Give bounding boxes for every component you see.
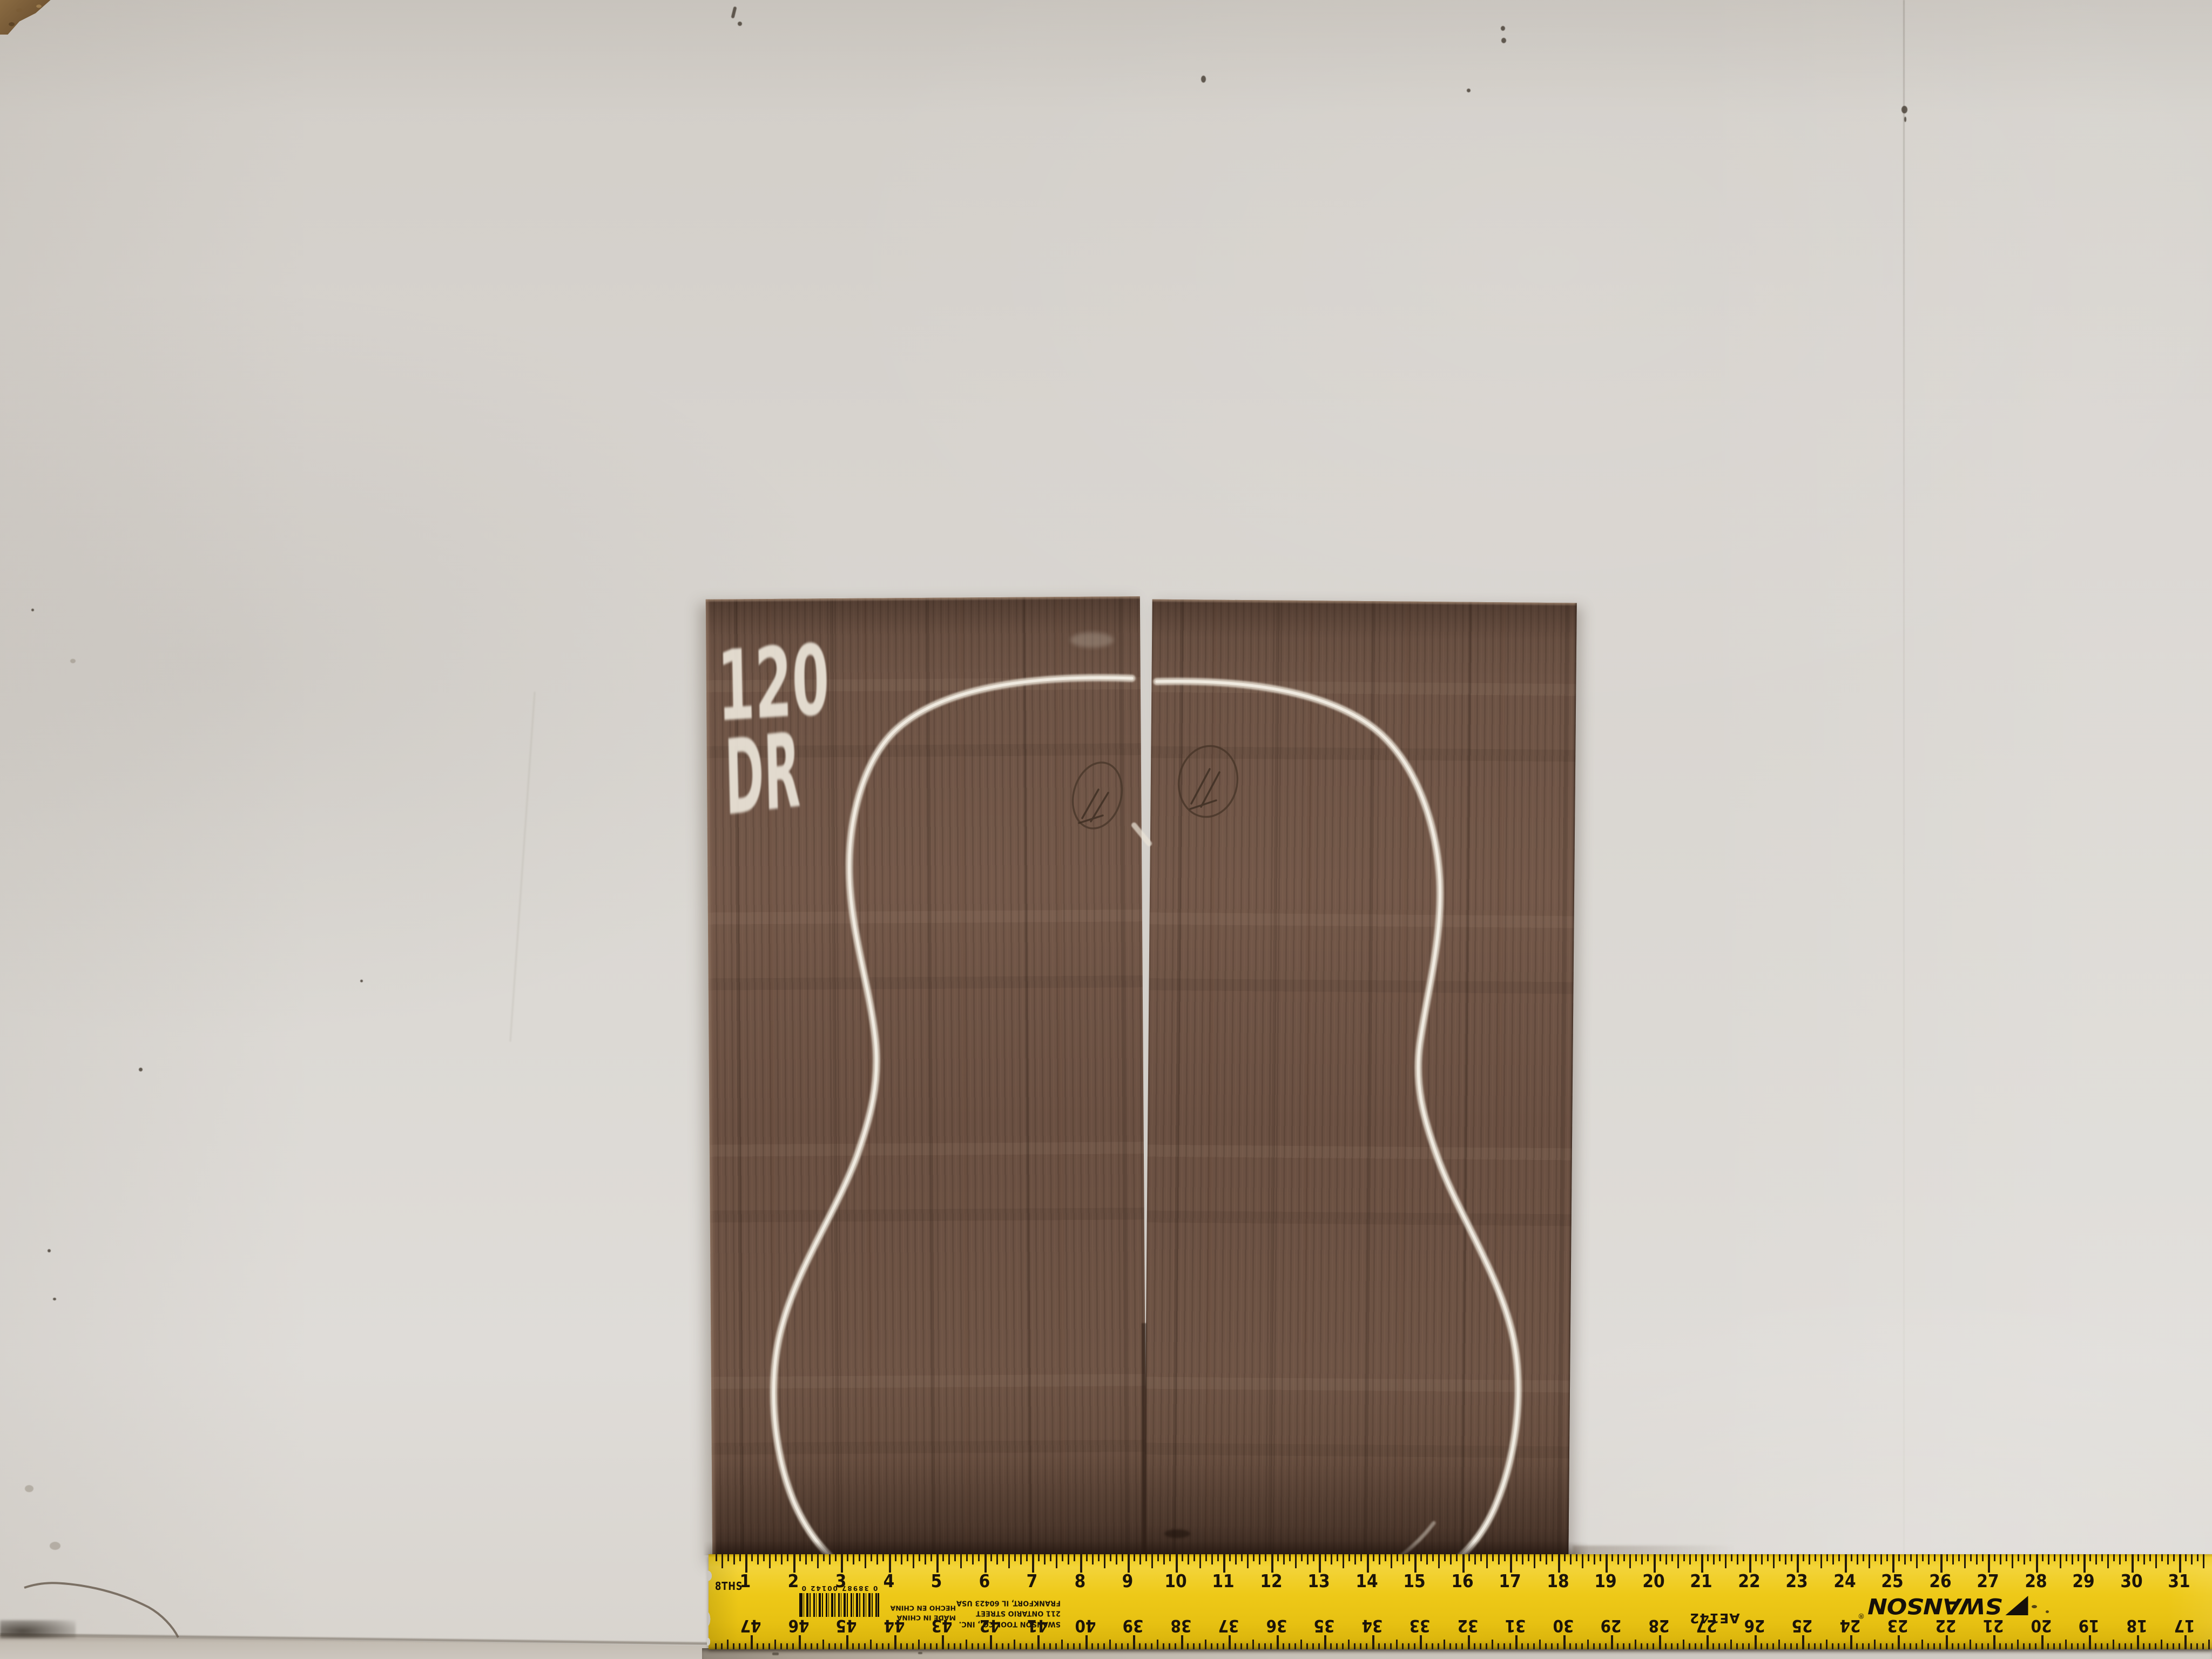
ruler-tick — [1981, 1643, 1983, 1649]
ruler-tick — [1044, 1554, 1046, 1564]
ruler-tick — [1695, 1643, 1696, 1649]
ruler-tick — [1606, 1554, 1608, 1573]
ruler-tick — [1127, 1643, 1129, 1649]
ruler-tick — [792, 1643, 794, 1649]
ruler-tick — [2060, 1554, 2061, 1568]
ruler-tick — [1593, 1643, 1595, 1649]
ruler-tick — [1832, 1643, 1833, 1649]
ruler-tick — [774, 1640, 776, 1649]
ruler-tick — [1134, 1554, 1135, 1561]
ruler-tick — [1031, 1643, 1033, 1649]
ruler-tick — [1067, 1643, 1069, 1649]
ruler-tick — [1958, 1554, 1960, 1561]
ruler-tick — [1940, 1554, 1943, 1573]
ruler-tick — [1623, 1643, 1624, 1649]
ruler-tick — [1588, 1554, 1589, 1561]
ruler-tick — [1545, 1643, 1547, 1649]
ruler-tick — [1904, 1643, 1905, 1649]
ruler-tick — [1092, 1554, 1094, 1564]
ruler-tick — [1498, 1643, 1499, 1649]
ruler-tick — [1366, 1643, 1367, 1649]
ruler-tick — [1707, 1554, 1709, 1561]
ruler-tick — [829, 1554, 831, 1564]
ruler-tick — [1373, 1554, 1374, 1561]
ruler-tick — [977, 1643, 979, 1649]
ruler-tick — [1181, 1635, 1183, 1649]
ruler-top-number: 27 — [1977, 1570, 1999, 1591]
ruler-tick — [1611, 1554, 1613, 1561]
ruler-bottom-number: 25 — [1792, 1616, 1813, 1635]
ruler-top-number: 26 — [1929, 1570, 1951, 1591]
ruler-tick — [1492, 1640, 1493, 1649]
ruler-bottom-number: 37 — [1218, 1616, 1239, 1635]
ruler-tick — [1551, 1643, 1553, 1649]
workshop-photo-scene: 120 DR 123456789101112131415161718192021… — [0, 0, 2212, 1659]
ruler-tick — [2113, 1640, 2114, 1649]
ruler-top-number: 18 — [1547, 1570, 1569, 1591]
ruler-tick — [1408, 1643, 1410, 1649]
ruler-top-number: 22 — [1738, 1570, 1760, 1591]
ruler-tick — [1964, 1643, 1965, 1649]
ruler-tick — [2167, 1643, 2168, 1649]
ruler-tick — [1748, 1643, 1750, 1649]
ruler-tick — [745, 1643, 746, 1649]
ruler-tick — [1408, 1554, 1410, 1561]
ruler-tick — [1426, 1554, 1428, 1564]
swanson-triangle-icon — [2005, 1596, 2028, 1616]
ruler-tick — [1432, 1554, 1434, 1561]
ruler-tick — [2167, 1554, 2169, 1564]
ruler-tick — [1605, 1643, 1607, 1649]
ruler-tick — [1289, 1554, 1291, 1561]
ruler-tick — [1379, 1554, 1380, 1564]
ruler-tick — [1145, 1643, 1147, 1649]
ruler-tick — [907, 1554, 908, 1561]
ruler-tick — [1097, 1643, 1099, 1649]
ruler-tick — [1970, 1554, 1972, 1561]
ruler-tick — [1641, 1643, 1642, 1649]
ruler-tick — [1104, 1554, 1105, 1568]
ruler-tick — [942, 1554, 944, 1561]
ruler-tick — [1809, 1554, 1810, 1564]
ruler-tick — [1993, 1635, 1995, 1649]
ruler-tick — [1975, 1643, 1977, 1649]
ruler-tick — [2173, 1643, 2174, 1649]
ruler-tick — [1582, 1554, 1583, 1568]
ruler-tick — [1629, 1554, 1631, 1568]
ruler-tick — [1247, 1554, 1249, 1568]
ruler-tick — [1182, 1554, 1183, 1561]
ruler-tick — [1987, 1643, 1989, 1649]
ruler-tick — [1306, 1643, 1308, 1649]
ruler-tick — [913, 1554, 914, 1568]
ruler-tick — [1701, 1643, 1702, 1649]
ruler-tick — [2035, 1643, 2036, 1649]
ruler-tick — [1701, 1554, 1703, 1573]
ruler-tick — [2018, 1554, 2019, 1561]
ruler-tick — [1486, 1554, 1488, 1568]
ruler-tick — [2023, 1643, 2025, 1649]
ruler-scale-label: 8THS — [715, 1580, 743, 1593]
ruler-tick — [2155, 1554, 2157, 1568]
ruler-tick — [2125, 1554, 2127, 1561]
wood-crack — [1164, 1529, 1190, 1538]
ruler-tick — [1534, 1554, 1535, 1568]
ruler-tick — [936, 1554, 939, 1573]
ruler-tick — [876, 1643, 878, 1649]
ruler-tick — [1910, 1643, 1911, 1649]
ruler-tick — [966, 1640, 967, 1649]
ruler-tick — [1271, 1554, 1273, 1573]
ruler-top-number: 30 — [2120, 1570, 2142, 1591]
ruler-tick — [1444, 1554, 1446, 1561]
ruler-tick — [1348, 1554, 1350, 1561]
ruler-tick — [1898, 1554, 1900, 1561]
ruler-tick — [948, 1643, 949, 1649]
ruler-tick — [1671, 1643, 1673, 1649]
ruler-tick — [1742, 1643, 1744, 1649]
ruler-tick — [1898, 1635, 1900, 1649]
ruler-tick — [763, 1554, 765, 1561]
ruler-tick — [1522, 1554, 1523, 1564]
ruler-tick — [978, 1554, 980, 1561]
ruler-tick — [1348, 1640, 1350, 1649]
ruler-tick — [2041, 1635, 2044, 1649]
ruler-top-number: 31 — [2168, 1570, 2190, 1591]
ruler-tick — [793, 1554, 795, 1573]
ruler-tick — [1139, 1643, 1141, 1649]
ruler-tick — [1808, 1643, 1810, 1649]
ruler-tick — [1654, 1554, 1656, 1573]
ruler-tick — [1079, 1643, 1081, 1649]
ruler-tick — [2119, 1643, 2120, 1649]
ruler-tick — [1815, 1554, 1816, 1561]
ruler-tick — [2143, 1643, 2144, 1649]
ruler-top-number: 20 — [1642, 1570, 1664, 1591]
ruler-tick — [846, 1635, 848, 1649]
ruler-tick — [1838, 1643, 1839, 1649]
ruler-tick — [2083, 1554, 2086, 1573]
ruler-tick — [1563, 1635, 1566, 1649]
ruler-tick — [733, 1643, 734, 1649]
ruler-tick — [1014, 1554, 1016, 1561]
ruler-tick — [1617, 1643, 1618, 1649]
ruler-top-number: 8 — [1074, 1570, 1085, 1591]
ruler-tick — [2107, 1643, 2108, 1649]
ruler-tick — [1874, 1554, 1876, 1561]
ruler-tick — [960, 1554, 962, 1568]
ruler-tick — [1796, 1643, 1798, 1649]
ruler-tick — [1151, 1554, 1153, 1568]
ruler-tick — [1934, 1554, 1935, 1561]
ruler-top-number: 5 — [931, 1570, 942, 1591]
ruler-tick — [1713, 1554, 1715, 1564]
ruler-tick — [1862, 1643, 1864, 1649]
ruler-tick — [1211, 1554, 1213, 1564]
ruler-tick — [1235, 1643, 1236, 1649]
ruler-tick — [1527, 1643, 1529, 1649]
ruler-tick — [983, 1643, 985, 1649]
ruler-tick — [2161, 1554, 2163, 1561]
ruler-tick — [751, 1554, 753, 1561]
ruler-tick — [2179, 1643, 2180, 1649]
ruler-tick — [1874, 1640, 1876, 1649]
ruler-tick — [1110, 1554, 1111, 1561]
ruler-tick — [1397, 1554, 1398, 1561]
ruler-tick — [1056, 1554, 1057, 1568]
ruler-tick — [1312, 1643, 1314, 1649]
ruler-tick — [786, 1643, 788, 1649]
ruler-tick — [2185, 1554, 2187, 1561]
swanson-logo-text: SWANSON — [1868, 1593, 2002, 1618]
ruler-tick — [1851, 1554, 1852, 1561]
ruler-tick — [2095, 1554, 2097, 1564]
ruler-tick — [1319, 1554, 1321, 1573]
ruler-tick — [835, 1554, 837, 1561]
ruler-tick — [960, 1643, 961, 1649]
ruler-tick — [1037, 1635, 1040, 1649]
ruler-tick — [1325, 1554, 1326, 1561]
ruler-tick — [1600, 1554, 1601, 1561]
ruler-tick — [1503, 1643, 1505, 1649]
ruler-tick — [1480, 1643, 1481, 1649]
ruler-tick — [2017, 1640, 2019, 1649]
ruler-tick — [2202, 1643, 2204, 1649]
ruler-tick — [1283, 1643, 1284, 1649]
ruler-bottom-number: 35 — [1314, 1616, 1335, 1635]
ruler-tick — [2107, 1554, 2109, 1568]
ruler-tick — [1939, 1643, 1941, 1649]
ruler-tick — [1635, 1554, 1637, 1561]
ruler-tick — [2113, 1554, 2115, 1561]
ruler-tick — [1199, 1643, 1201, 1649]
ruler-tick — [1313, 1554, 1314, 1561]
ruler-tick — [1880, 1554, 1882, 1564]
ruler-tick — [900, 1643, 902, 1649]
ruler-tick — [1718, 1643, 1720, 1649]
ruler-tick — [1074, 1554, 1075, 1561]
ruler-tick — [2005, 1643, 2007, 1649]
ruler-tick — [912, 1643, 914, 1649]
ruler-tick — [1157, 1554, 1159, 1561]
ruler-tick — [1169, 1643, 1170, 1649]
ruler-tick — [1778, 1640, 1780, 1649]
ruler-tick — [1283, 1554, 1285, 1564]
ruler-tick — [787, 1554, 788, 1561]
ruler-tick — [1055, 1643, 1057, 1649]
ruler-tick — [1211, 1643, 1212, 1649]
ruler-tick — [2089, 1635, 2091, 1649]
ruler-tick — [925, 1554, 926, 1564]
ruler-tick — [1677, 1643, 1678, 1649]
ruler-tick — [1086, 1554, 1088, 1561]
ruler-tick — [727, 1640, 729, 1649]
ruler-top-number: 23 — [1785, 1570, 1808, 1591]
ruler-top-number: 4 — [883, 1570, 894, 1591]
ruler-tick — [2137, 1554, 2139, 1561]
ruler-tick — [721, 1554, 723, 1568]
ruler-tick — [919, 1554, 920, 1561]
ruler-tick — [841, 1554, 843, 1573]
panel-bottom-shadow — [703, 1541, 1589, 1555]
ruler-tick — [1235, 1554, 1237, 1564]
ruler-tick — [1133, 1635, 1135, 1649]
ruler-tick — [1629, 1643, 1630, 1649]
ruler-tick — [1844, 1643, 1845, 1649]
ruler-tick — [1486, 1643, 1487, 1649]
ruler-tick — [901, 1554, 902, 1564]
ruler-tick — [858, 1643, 860, 1649]
ruler-tick — [1396, 1640, 1398, 1649]
ruler-tick — [1432, 1643, 1433, 1649]
ruler-tick — [1755, 1635, 1757, 1649]
ruler-tick — [1623, 1554, 1625, 1561]
ruler-tick — [2048, 1554, 2049, 1564]
ruler-bottom-number: 47 — [740, 1616, 761, 1635]
ruler-tick — [2029, 1554, 2031, 1561]
ruler-top-number: 29 — [2072, 1570, 2094, 1591]
ruler-tick — [1999, 1643, 2001, 1649]
pencil-circle-left — [1065, 757, 1129, 834]
ruler-tick — [1539, 1640, 1541, 1649]
ruler-tick — [1952, 1643, 1953, 1649]
ruler-tick — [1223, 1643, 1224, 1649]
ruler-tick — [1982, 1554, 1984, 1561]
ruler-tick — [1450, 1554, 1452, 1564]
ruler-tick — [1061, 1640, 1063, 1649]
ruler-tick — [1384, 1643, 1386, 1649]
ruler-tick — [1892, 1643, 1893, 1649]
ruler-tick — [745, 1554, 747, 1573]
ruler-tick — [859, 1554, 860, 1561]
ruler-bottom-number: 19 — [2079, 1616, 2100, 1635]
ruler-tick — [1026, 1554, 1028, 1561]
ruler-tick — [1910, 1554, 1912, 1561]
ruler-tick — [2095, 1643, 2096, 1649]
ruler-speck — [2046, 1610, 2049, 1613]
ruler-tick — [2143, 1554, 2145, 1564]
ruler-tick — [1367, 1554, 1369, 1573]
ruler-tick — [1845, 1554, 1847, 1573]
ruler-tick — [870, 1640, 872, 1649]
ruler-tick — [1564, 1554, 1566, 1561]
ruler-tick — [1414, 1554, 1417, 1573]
ruler-tick — [1635, 1640, 1636, 1649]
ruler-tick — [751, 1635, 753, 1649]
ruler-tick — [1265, 1554, 1266, 1561]
ruler-tick — [871, 1554, 872, 1561]
ruler-address-block: SWANSON TOOL CO., INC.211 ONTARIO STREET… — [953, 1597, 1061, 1629]
ruler-tick — [2208, 1640, 2210, 1649]
ruler-tick — [1103, 1643, 1105, 1649]
ruler-tick — [1259, 1554, 1260, 1564]
ruler-tick — [1575, 1643, 1577, 1649]
ruler-top-number: 15 — [1403, 1570, 1425, 1591]
ruler-tick — [1455, 1643, 1457, 1649]
ruler-tick — [817, 1643, 818, 1649]
ruler-tick — [1032, 1554, 1034, 1573]
ruler-tick — [1301, 1554, 1303, 1561]
ruler-tick — [1240, 1643, 1242, 1649]
ruler-tick — [954, 1643, 955, 1649]
ruler-tick — [1468, 1635, 1470, 1649]
ruler-tick — [1205, 1640, 1206, 1649]
chalk-guitar-outline-right — [1157, 682, 1518, 1598]
ruler-tick — [1002, 1643, 1003, 1649]
ruler-tick — [1797, 1554, 1799, 1573]
ruler-tick — [805, 1643, 806, 1649]
ruler-tick — [1772, 1643, 1774, 1649]
ruler-tick — [1438, 1643, 1439, 1649]
ruler-tick — [1647, 1643, 1648, 1649]
ruler-tick — [2149, 1643, 2150, 1649]
ruler-tick — [2077, 1643, 2079, 1649]
ruler-tick — [1826, 1554, 1828, 1561]
ruler-top-number: 24 — [1833, 1570, 1856, 1591]
ruler-tick — [1761, 1643, 1762, 1649]
ruler-tick — [1294, 1643, 1296, 1649]
ruler-tick — [1927, 1643, 1929, 1649]
ruler-tick — [1767, 1554, 1769, 1561]
ruler-tick — [1952, 1554, 1954, 1564]
ruler-tick — [1671, 1554, 1673, 1561]
ruler-tick — [1587, 1640, 1589, 1649]
ruler-tick — [1617, 1554, 1619, 1564]
ruler-tick — [1707, 1635, 1709, 1649]
barcode-digits: 0 38987 00142 0 — [799, 1584, 879, 1592]
ruler-tick — [2184, 1635, 2187, 1649]
ruler-tick — [1229, 1635, 1231, 1649]
ruler-tick — [811, 1643, 812, 1649]
ruler-tick — [2065, 1640, 2067, 1649]
ruler-tick — [1116, 1554, 1117, 1564]
ruler-tick — [805, 1554, 807, 1564]
ruler-tick — [948, 1554, 950, 1564]
ruler-tick — [1665, 1554, 1667, 1564]
ruler: 1234567891011121314151617181920212223242… — [709, 1554, 2212, 1649]
ruler-bottom-number: 28 — [1648, 1616, 1669, 1635]
ruler-top-number: 13 — [1307, 1570, 1330, 1591]
ruler-tick — [930, 1554, 932, 1561]
ruler-tick — [1360, 1554, 1362, 1561]
ruler-tick — [1252, 1640, 1254, 1649]
ruler-tick — [2197, 1554, 2198, 1561]
ruler-tick — [1976, 1554, 1978, 1564]
chalk-guitar-outline-left-core — [773, 678, 1132, 1597]
ruler-tick — [1008, 1554, 1010, 1568]
ruler-tick — [1886, 1554, 1888, 1561]
ruler-tick — [1402, 1643, 1404, 1649]
ruler-tick — [972, 1554, 974, 1564]
ruler-tick — [1946, 1635, 1948, 1649]
ruler-tick — [1151, 1643, 1152, 1649]
ruler-tick — [1474, 1554, 1476, 1564]
ruler-top-number: 21 — [1690, 1570, 1712, 1591]
ruler-tick — [1814, 1643, 1816, 1649]
ruler-tick — [1528, 1554, 1529, 1561]
ruler-tick — [895, 1554, 896, 1561]
ruler-tick — [2203, 1554, 2204, 1568]
ruler-tick — [1647, 1554, 1649, 1561]
ruler-tick — [1498, 1554, 1500, 1564]
ruler-address-line: FRANKFORT, IL 60423 USA — [953, 1597, 1061, 1608]
ruler-tick — [721, 1643, 723, 1649]
ruler-tick — [1091, 1643, 1093, 1649]
ruler-tick — [990, 1554, 992, 1561]
ruler-tick — [1468, 1554, 1470, 1561]
ruler-tick — [1761, 1554, 1763, 1564]
ruler-tick — [1330, 1643, 1332, 1649]
